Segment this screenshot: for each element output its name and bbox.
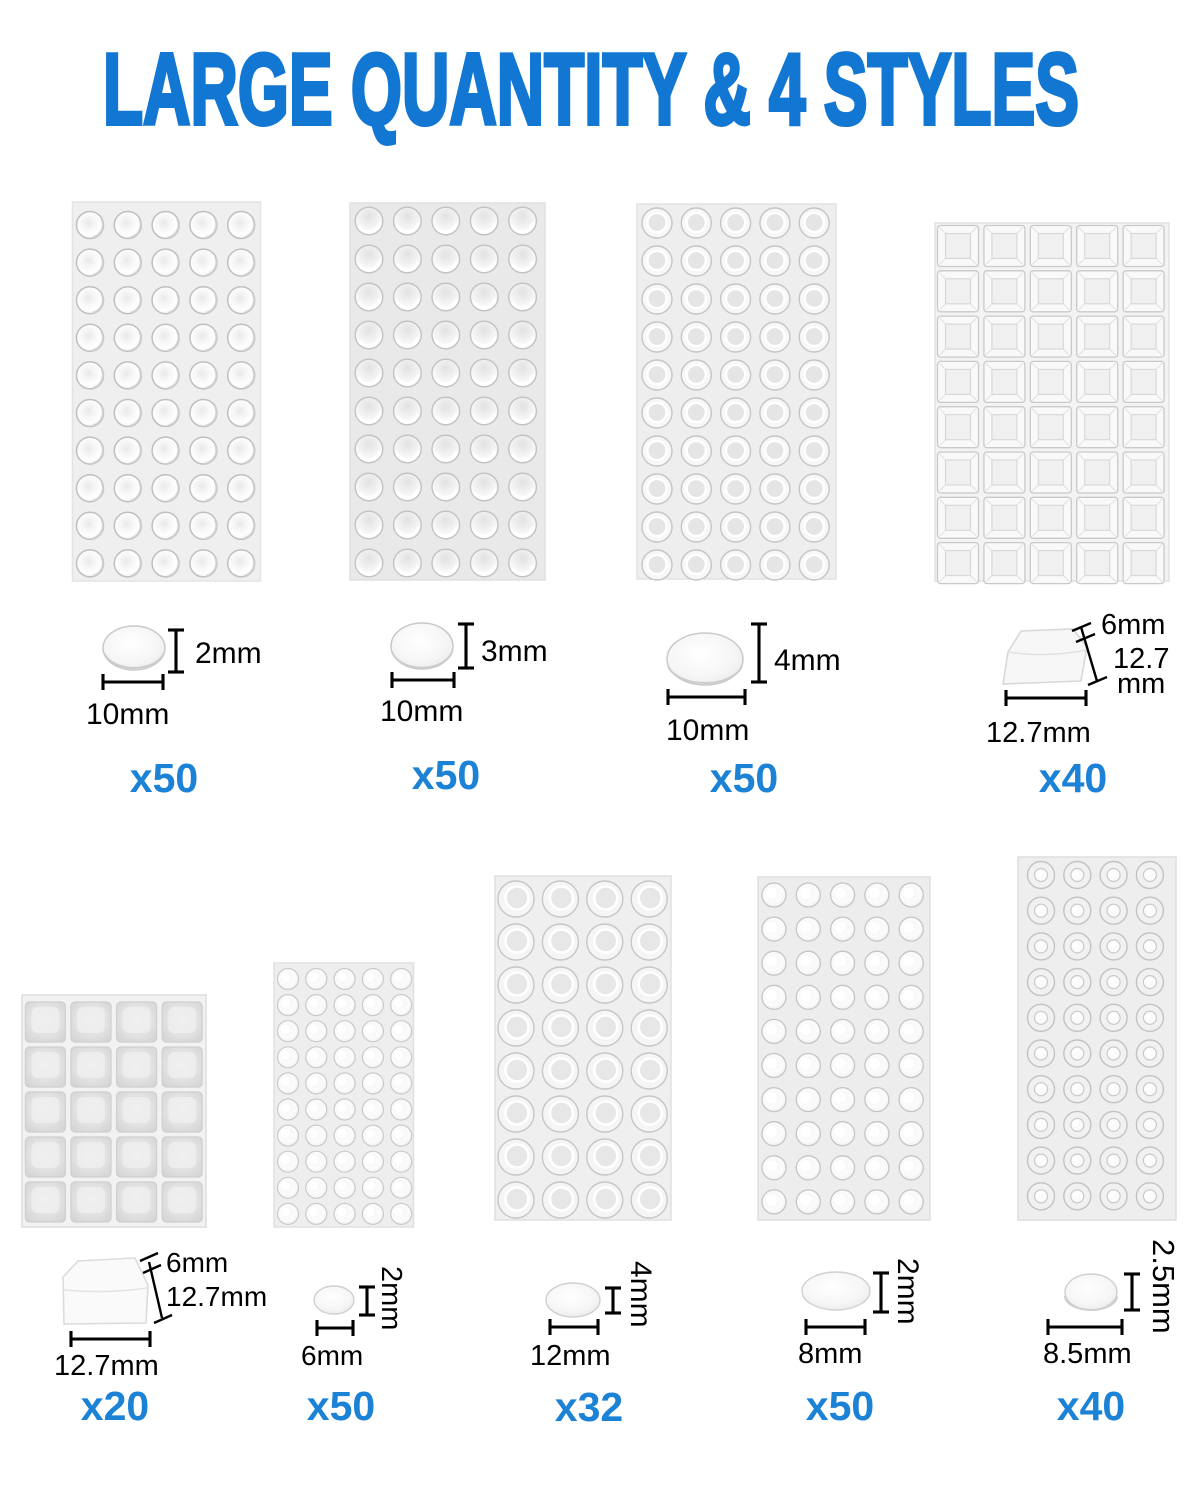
svg-text:LARGE QUANTITY & 4 STYLES: LARGE QUANTITY & 4 STYLES [103, 34, 1079, 147]
svg-text:12.7mm: 12.7mm [54, 1350, 159, 1382]
svg-text:x32: x32 [555, 1384, 623, 1430]
svg-text:x50: x50 [412, 752, 480, 798]
svg-text:12mm: 12mm [530, 1340, 611, 1372]
svg-text:x50: x50 [806, 1383, 874, 1429]
svg-text:x50: x50 [307, 1383, 375, 1429]
svg-text:6mm: 6mm [1101, 609, 1165, 641]
svg-text:12.7mm: 12.7mm [986, 717, 1091, 749]
svg-text:x40: x40 [1039, 755, 1107, 801]
svg-text:10mm: 10mm [666, 714, 749, 747]
svg-text:8mm: 8mm [798, 1338, 862, 1370]
svg-text:x50: x50 [710, 755, 778, 801]
svg-text:12.7mm: 12.7mm [166, 1281, 267, 1312]
svg-text:6mm: 6mm [166, 1247, 228, 1278]
svg-text:10mm: 10mm [380, 695, 463, 728]
svg-text:x50: x50 [130, 755, 198, 801]
svg-text:x40: x40 [1057, 1383, 1125, 1429]
svg-text:4mm: 4mm [774, 644, 841, 677]
svg-text:2mm: 2mm [375, 1266, 407, 1330]
svg-text:3mm: 3mm [481, 635, 548, 668]
svg-text:2.5mm: 2.5mm [1146, 1239, 1181, 1334]
svg-text:10mm: 10mm [86, 698, 169, 731]
svg-text:6mm: 6mm [301, 1340, 363, 1371]
svg-text:2mm: 2mm [891, 1258, 924, 1325]
svg-text:8.5mm: 8.5mm [1043, 1338, 1132, 1370]
svg-text:2mm: 2mm [195, 637, 262, 670]
svg-text:mm: mm [1117, 668, 1165, 700]
svg-text:4mm: 4mm [624, 1261, 657, 1328]
svg-text:x20: x20 [81, 1383, 149, 1429]
